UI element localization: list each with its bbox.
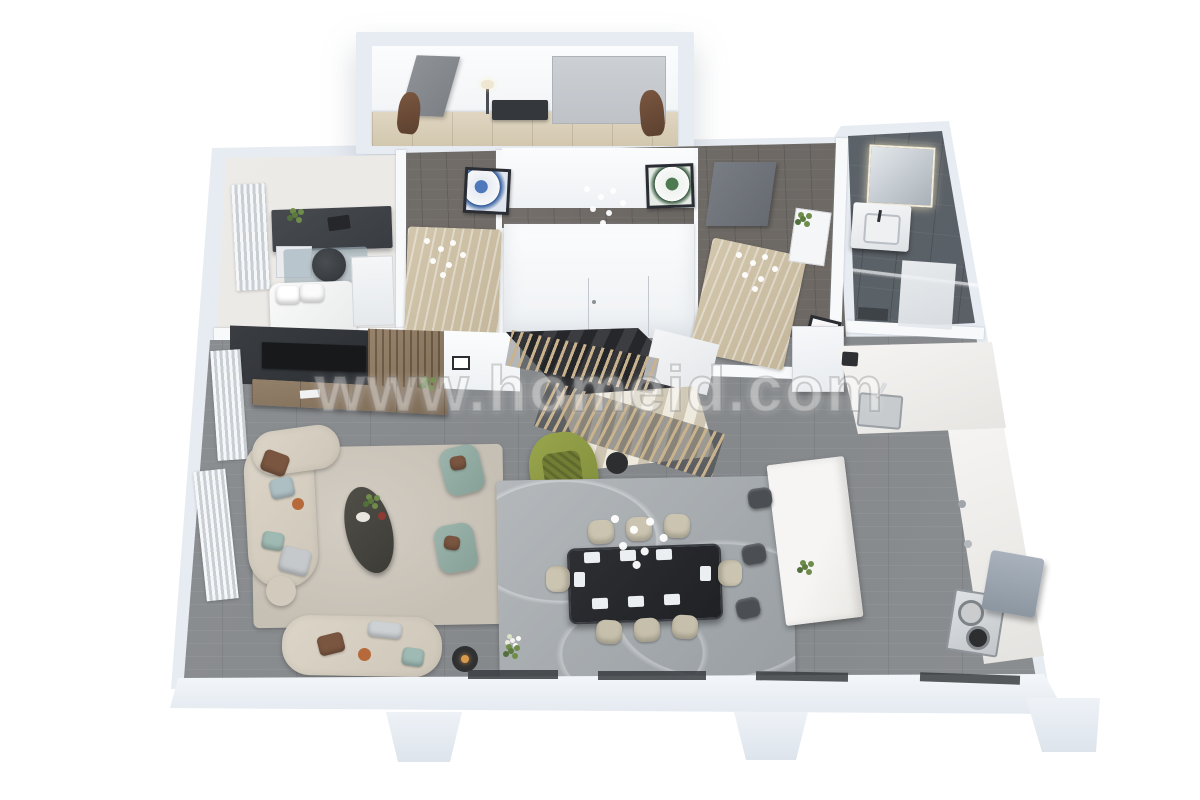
office-bed-pillow-1 [276, 286, 300, 304]
bathroom-sink [863, 213, 901, 245]
coffee-table-tray [356, 512, 370, 522]
wall-buttress-3 [1026, 698, 1100, 752]
coffee-table-plant [368, 498, 374, 504]
sofa-orange-ball-2 [358, 648, 371, 661]
stairwell-door-handle [592, 300, 596, 304]
placemat-5 [628, 596, 644, 608]
sofa-bottom [281, 615, 442, 678]
bedroom1-chandelier [424, 238, 430, 244]
desk-plant [292, 212, 298, 218]
dining-chandelier [611, 515, 619, 523]
art-frame-blue [463, 167, 511, 215]
office-wardrobe [351, 255, 395, 326]
office-bed-pillow-2 [300, 284, 324, 302]
dining-chair-2 [626, 517, 653, 542]
pot-1 [958, 600, 984, 626]
bottom-window-3 [756, 671, 848, 682]
dining-chair-5 [633, 617, 660, 642]
watermark-text: www.homeid.com [150, 352, 1050, 426]
dining-flower-plant [510, 638, 515, 643]
table-lamp-shade [481, 80, 494, 89]
pot-2 [966, 626, 990, 650]
bottom-window-2 [598, 671, 706, 680]
sofa-blanket-gray-2 [367, 620, 402, 639]
coffee-table-vase-red [378, 512, 386, 520]
shower-panel [898, 260, 956, 330]
art-frame-green [645, 163, 695, 209]
office-curtain [231, 183, 271, 291]
placemat-1 [584, 552, 600, 564]
placemat-end-left [574, 572, 585, 587]
island-plant [802, 564, 808, 570]
kitchen-jar-2 [964, 540, 972, 548]
floor-lamp-bulb [461, 655, 469, 663]
console-table [492, 100, 548, 120]
dining-chair-3 [664, 514, 691, 539]
bath-mat [858, 307, 889, 321]
pouf [266, 576, 296, 606]
bedroom2-door [706, 162, 777, 226]
bedroom1-bed-rug [404, 226, 502, 335]
sofa-pillow-teal-2 [401, 647, 425, 668]
wall-buttress-1 [386, 712, 462, 762]
dining-chair-1 [587, 519, 615, 545]
placemat-2 [620, 550, 636, 562]
bedroom2-shelf-unit [788, 208, 831, 266]
placemat-3 [656, 549, 672, 561]
dining-chair-end-left [546, 566, 570, 592]
floorplan-render: www.homeid.com [0, 0, 1200, 800]
dining-chair-4 [595, 619, 623, 645]
stairwell-door-seam-2 [648, 276, 649, 336]
stairwell-door-seam-1 [588, 278, 589, 336]
hall-chandelier [584, 186, 590, 192]
bedroom2-chandelier [736, 252, 742, 258]
ac-unit [981, 550, 1045, 618]
bottom-window-1 [468, 670, 558, 679]
wall-buttress-2 [734, 712, 808, 760]
dining-flower-leaves [508, 648, 514, 654]
armchair2-pillow [443, 535, 461, 551]
stairwell-enclosure [504, 224, 694, 338]
placemat-end-right [700, 566, 711, 581]
bathroom-lit-mirror [866, 144, 935, 207]
placemat-6 [664, 594, 680, 606]
placemat-4 [592, 598, 608, 610]
bar-stool-1 [747, 486, 774, 509]
dining-chair-end-right [718, 560, 742, 586]
bedroom2-plant [800, 216, 806, 222]
office-chair [312, 248, 346, 282]
sofa-orange-ball-1 [292, 498, 304, 510]
kitchen-jar-1 [958, 500, 966, 508]
dining-chair-6 [671, 614, 698, 639]
stairs-side-table [606, 452, 628, 474]
